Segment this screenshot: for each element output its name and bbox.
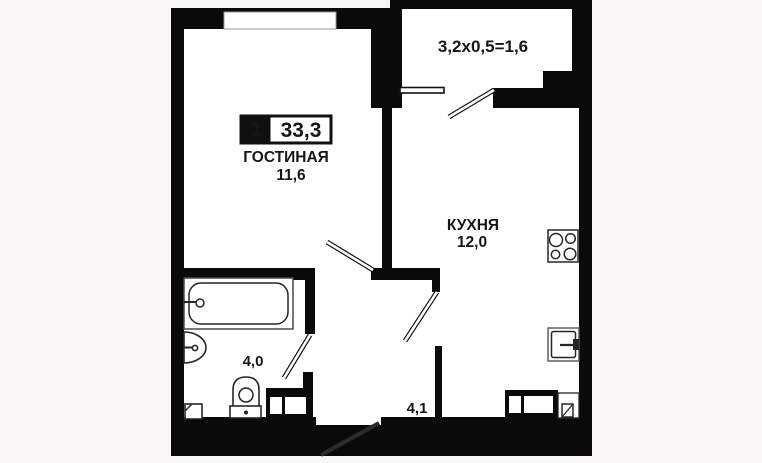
wall-balcony-right [572, 0, 592, 90]
wall-living-balcony [371, 8, 402, 108]
badge-total-area: 33,3 [281, 119, 322, 142]
kitchen-cabinet-icon [505, 390, 558, 418]
hallway-area: 4,1 [407, 400, 428, 417]
bathroom-area: 4,0 [243, 353, 264, 370]
kitchen-label: КУХНЯ [447, 217, 499, 234]
badge-rooms-count: 1 [251, 120, 262, 142]
wall-bottom [171, 417, 592, 456]
wall-balcony-top [390, 0, 592, 9]
wall-hall-kitchen [435, 346, 442, 422]
living-window-icon [224, 12, 336, 29]
wall-right [579, 90, 592, 422]
balcony-dimensions-label: 3,2x0,5=1,6 [438, 37, 528, 56]
living-room-area: 11,6 [276, 167, 306, 184]
living-room-label: ГОСТИНАЯ [243, 149, 329, 166]
wall-hall-top [371, 268, 440, 280]
balcony-window-icon [400, 88, 444, 94]
wall-bathroom-right-upper [305, 268, 315, 334]
kitchen-area: 12,0 [457, 234, 487, 251]
wall-left [171, 8, 184, 456]
bathtub-icon [184, 278, 293, 329]
stove-icon [548, 230, 578, 262]
kitchen-sink-icon [548, 328, 579, 361]
wall-kitchen-door-stub [432, 280, 440, 292]
floor-plan: 1 33,3 3,2x0,5=1,6 ГОСТИНАЯ 11,6 КУХНЯ 1… [0, 0, 762, 463]
corner-cabinet-icon [558, 393, 579, 418]
entrance-opening [316, 417, 381, 425]
floor-plan-drawing: 1 33,3 3,2x0,5=1,6 ГОСТИНАЯ 11,6 КУХНЯ 1… [0, 0, 762, 463]
apartment-badge: 1 33,3 [241, 116, 331, 143]
wall-balcony-bottom [493, 88, 592, 108]
toilet-icon [230, 377, 261, 418]
vent-shaft-icon [185, 404, 202, 419]
wall-balcony-notch [543, 71, 573, 90]
wall-living-kitchen [382, 105, 392, 280]
hall-wardrobe-icon [266, 388, 313, 418]
